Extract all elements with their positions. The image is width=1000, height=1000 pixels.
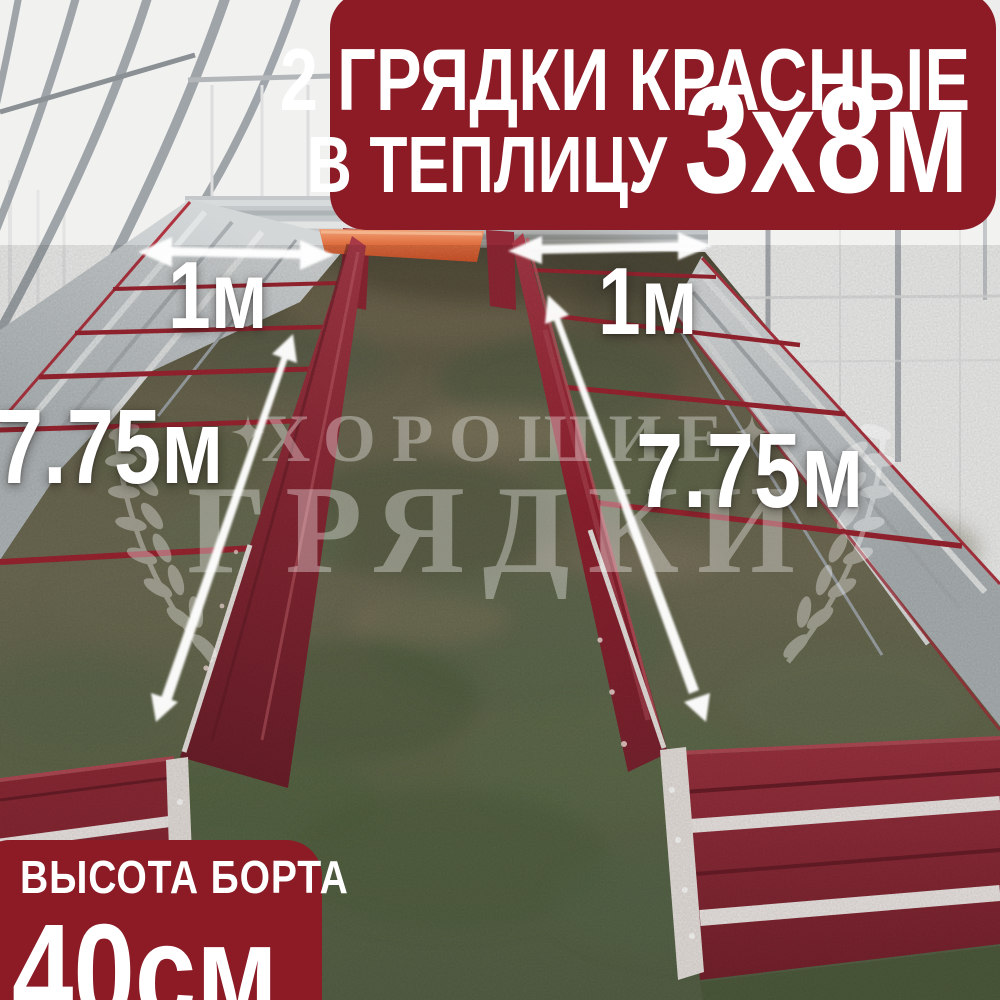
bed-width-label-right: 1м	[598, 254, 722, 350]
badge-title: ВЫСОТА БОРТА	[20, 854, 407, 900]
bed-width-label-left: 1м	[168, 248, 292, 344]
size-banner: 2 ГРЯДКИ КРАСНЫЕ В ТЕПЛИЦУ3х8м	[330, 0, 996, 230]
bed-length-label-left: 7.75м	[0, 394, 281, 500]
banner-size-prefix: В ТЕПЛИЦУ	[307, 120, 667, 209]
bed-length-label-right: 7.75м	[636, 418, 921, 524]
banner-size-line: В ТЕПЛИЦУ3х8м	[120, 64, 970, 216]
height-badge: ВЫСОТА БОРТА 40см	[0, 840, 322, 1000]
product-image: ХОРОШИЕ ГРЯДКИ	[0, 0, 1000, 1000]
badge-value: 40см	[12, 904, 344, 1000]
banner-size-value: 3х8м	[684, 55, 970, 225]
